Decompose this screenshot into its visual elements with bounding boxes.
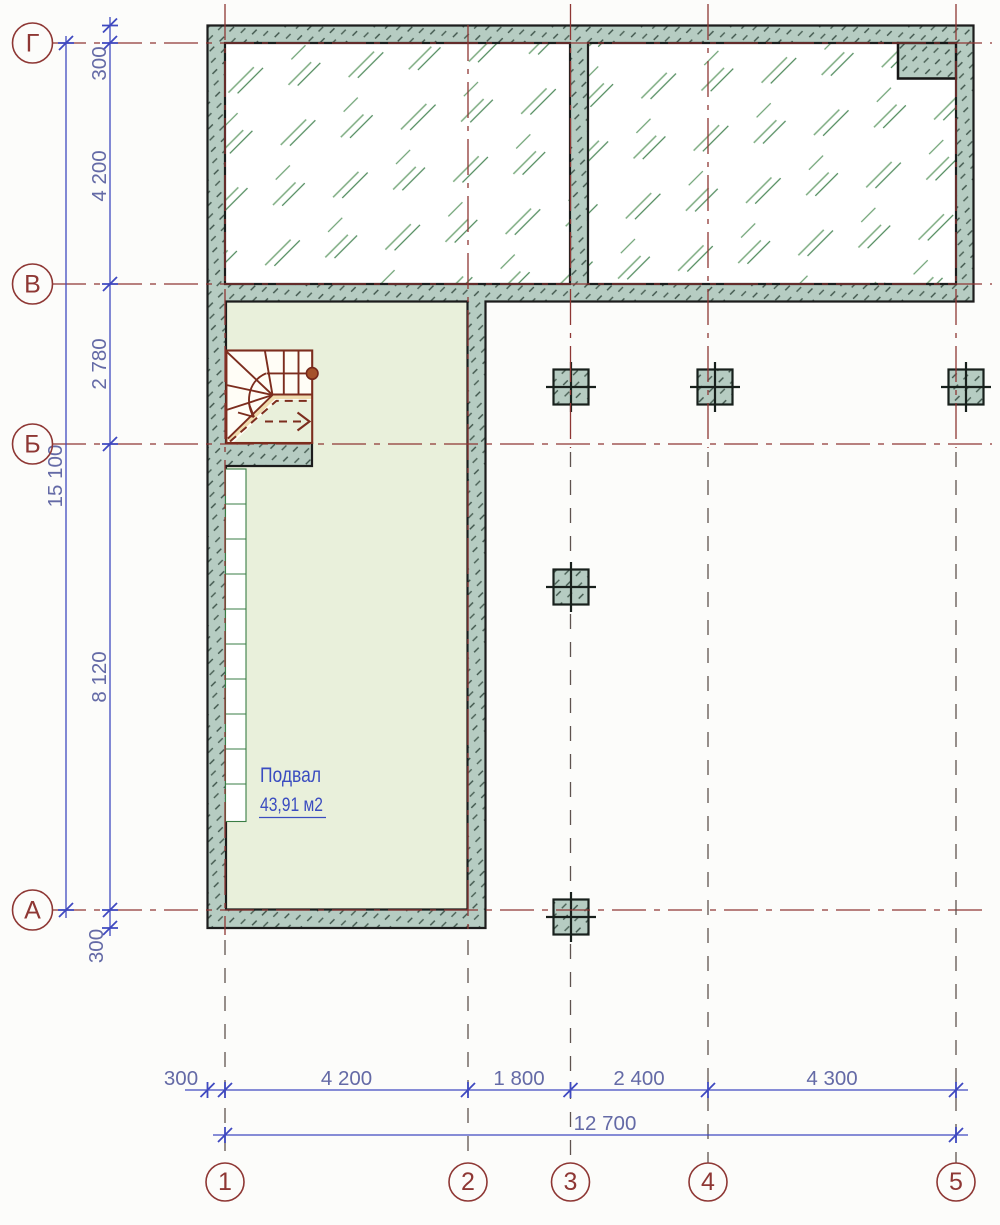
- svg-text:2: 2: [461, 1168, 475, 1196]
- svg-text:4 300: 4 300: [806, 1067, 857, 1090]
- svg-text:1: 1: [218, 1168, 232, 1196]
- svg-text:12 700: 12 700: [574, 1112, 637, 1135]
- svg-text:3: 3: [564, 1168, 578, 1196]
- svg-text:300: 300: [88, 46, 111, 80]
- svg-text:1 800: 1 800: [493, 1067, 544, 1090]
- svg-text:8 120: 8 120: [88, 651, 111, 702]
- svg-text:4 200: 4 200: [88, 150, 111, 201]
- svg-text:43,91 м2: 43,91 м2: [260, 794, 323, 816]
- svg-text:300: 300: [85, 929, 108, 963]
- svg-text:15 100: 15 100: [44, 445, 67, 508]
- svg-text:4 200: 4 200: [321, 1067, 372, 1090]
- svg-text:А: А: [24, 897, 41, 925]
- svg-text:Г: Г: [26, 30, 40, 58]
- svg-text:В: В: [24, 271, 41, 299]
- svg-text:5: 5: [949, 1168, 963, 1196]
- svg-text:2 400: 2 400: [613, 1067, 664, 1090]
- svg-text:300: 300: [164, 1067, 198, 1090]
- svg-text:Б: Б: [24, 431, 40, 459]
- svg-text:Подвал: Подвал: [260, 764, 321, 787]
- svg-text:2 780: 2 780: [88, 338, 111, 389]
- svg-text:4: 4: [701, 1168, 715, 1196]
